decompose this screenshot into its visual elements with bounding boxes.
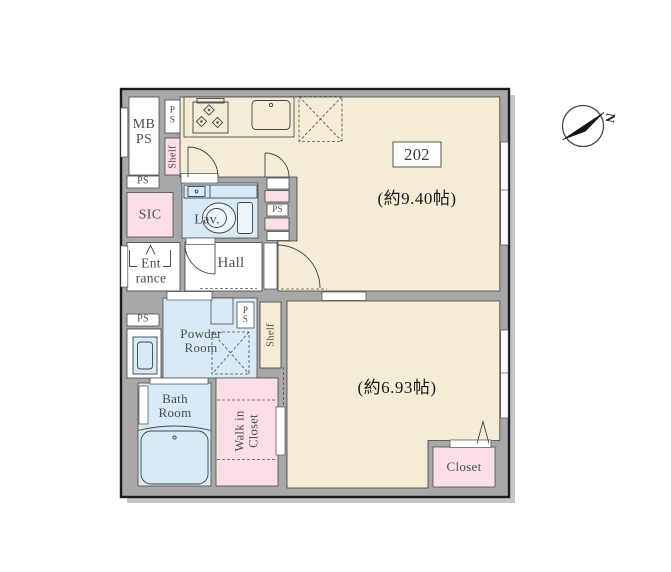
- column-box3: [265, 218, 289, 230]
- washbasin-icon: [133, 337, 157, 374]
- ps-column-label: PS: [272, 205, 283, 215]
- compass-icon: [563, 106, 605, 147]
- bath-entry: [150, 378, 208, 384]
- sic-label: SIC: [139, 207, 162, 222]
- hall-label: Hall: [217, 254, 244, 270]
- column-box4: [267, 232, 289, 241]
- unit-number: 202: [404, 146, 430, 164]
- shelf-top-label: Shelf: [167, 145, 178, 169]
- toilet-tank-icon: [238, 203, 253, 234]
- ps-left2-label: PS: [137, 315, 149, 326]
- column-box2: [265, 191, 289, 203]
- main-room-door-opening: [264, 243, 277, 289]
- powder-nook: [211, 298, 233, 324]
- shelf-bottom-label: Shelf: [265, 323, 276, 347]
- main-area-label: (約9.40帖): [377, 189, 456, 207]
- north-label: N: [602, 112, 617, 124]
- window-bedroom: [501, 330, 509, 418]
- ps-lower-label: PS: [243, 306, 248, 324]
- lav-door-opening: [186, 238, 215, 245]
- meter-box-door: [121, 108, 128, 157]
- entry-door-gap: [121, 246, 128, 287]
- kitchen-door-opening: [181, 174, 218, 184]
- closet-label: Closet: [446, 459, 481, 473]
- column-box1: [267, 178, 289, 189]
- powder-room-entry: [167, 292, 212, 301]
- second-area-label: (約6.93帖): [357, 378, 436, 396]
- window-main-room: [501, 142, 509, 245]
- entrance-label: Entrance: [136, 256, 167, 285]
- mb-ps-label: MBPS: [133, 117, 155, 147]
- ps-left1-label: PS: [137, 177, 149, 188]
- wic-door-panel: [276, 407, 285, 455]
- lav-label: Lav.: [194, 212, 220, 227]
- powder-room-label: PowderRoom: [180, 327, 222, 355]
- bath-door-panel: [139, 386, 148, 424]
- walk-in-closet-label: Walk inCloset: [233, 410, 260, 451]
- closet-door-panel: [450, 440, 491, 448]
- ps-top-label: PS: [170, 107, 176, 126]
- floor-plan-page: MBPS PS Shelf PS SIC Entrance Lav. Hall …: [0, 0, 671, 572]
- floor-plan-drawing: [0, 0, 671, 572]
- bath-room-label: BathRoom: [159, 392, 192, 420]
- room-divider-panel: [322, 292, 366, 301]
